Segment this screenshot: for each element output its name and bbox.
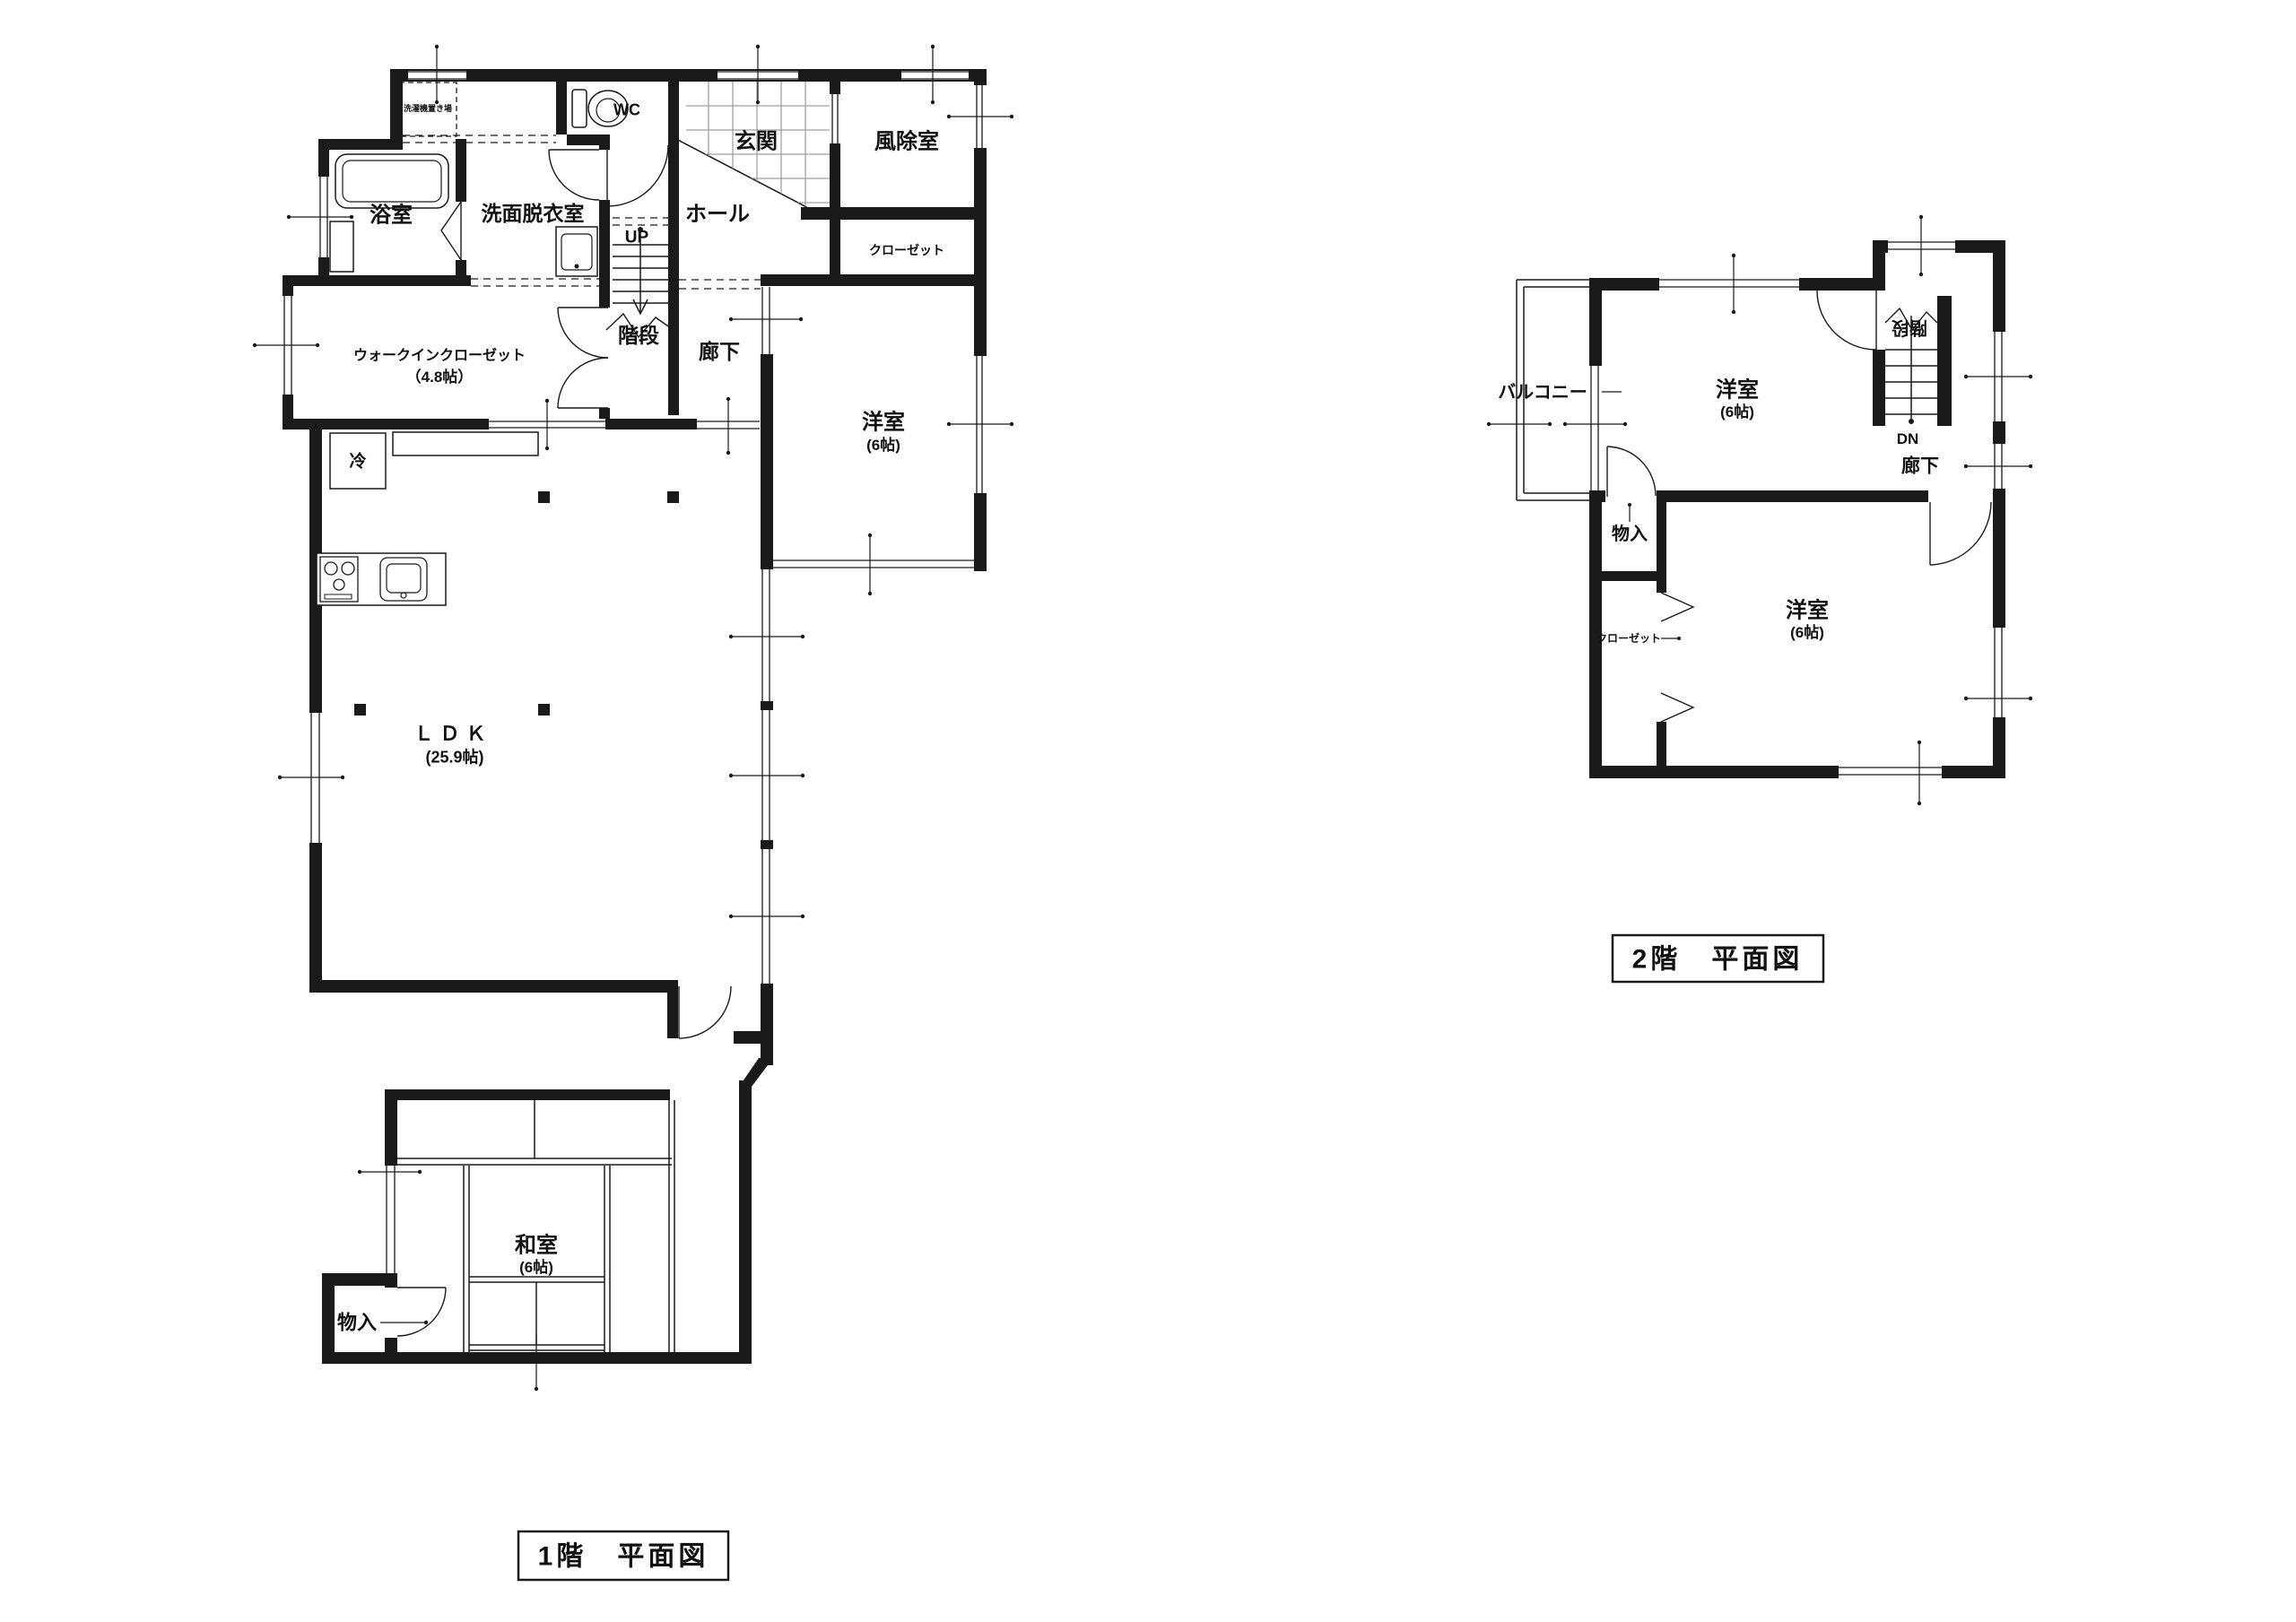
label-wic-size: （4.8帖）	[406, 368, 474, 386]
label-bedroom2-name: 洋室	[1786, 597, 1829, 622]
wall	[830, 220, 840, 274]
pillar	[538, 704, 550, 716]
wall	[318, 257, 329, 275]
f2-windows	[1563, 215, 2032, 805]
label-fridge: 冷	[349, 451, 366, 472]
label-balcony: バルコニー	[1498, 382, 1587, 403]
pillar	[538, 491, 550, 503]
f1-walls	[283, 69, 987, 1364]
label-stairs-1f: 階段	[618, 324, 659, 347]
window-veranda-south	[773, 533, 974, 595]
wall	[1799, 278, 1885, 291]
wall	[739, 1080, 752, 1364]
label-wic-name: ウォークインクローゼット	[353, 347, 526, 364]
door-bath-fold	[441, 202, 461, 260]
label-western-size-1f: (6帖)	[866, 436, 900, 454]
wall	[761, 354, 773, 569]
wall	[734, 1031, 761, 1044]
wall	[667, 993, 678, 1038]
wall	[556, 82, 567, 134]
wall	[1602, 571, 1666, 581]
wall	[1589, 278, 1659, 291]
label-bath: 浴室	[370, 202, 413, 227]
label-japanese-name: 和室	[515, 1232, 558, 1257]
wall	[390, 82, 403, 139]
door-ldk-exit	[679, 986, 731, 1038]
wall	[1993, 240, 2005, 332]
wall	[761, 274, 987, 286]
wall	[1993, 489, 2005, 628]
wall	[668, 82, 679, 415]
window	[717, 45, 798, 104]
window	[1659, 254, 1799, 314]
floor2-plan: バルコニー 洋室 (6帖) 階段 DN 廊下 物入 クローゼット 洋室 (6帖)…	[1487, 215, 2032, 982]
wall	[1589, 766, 1839, 778]
label-storage-1f: 物入	[337, 1312, 377, 1334]
wall	[1942, 766, 2005, 778]
kitchen-back-counter	[393, 432, 538, 455]
wall	[385, 1338, 397, 1352]
window	[358, 1166, 422, 1273]
wall	[1873, 253, 1885, 291]
window	[278, 713, 344, 843]
wall	[974, 493, 987, 571]
window	[947, 356, 1013, 493]
wall	[318, 150, 329, 177]
door-wic-double	[558, 308, 608, 408]
door-storage-2f	[1607, 447, 1656, 497]
label-laundry: 洗濯機置き場	[404, 103, 452, 113]
wall	[974, 148, 987, 356]
floorplan-canvas: 洗濯機置き場 浴室 洗面脱衣室 WC 玄関 風除室 ホール UP クローゼット …	[0, 0, 2296, 1622]
kitchen-island	[317, 553, 446, 605]
label-wc: WC	[613, 100, 640, 118]
floorplan-page: 洗濯機置き場 浴室 洗面脱衣室 WC 玄関 風除室 ホール UP クローゼット …	[0, 0, 2296, 1622]
window	[947, 85, 1013, 148]
wall	[309, 980, 678, 993]
f1-fixtures	[317, 82, 628, 605]
window	[1964, 628, 2032, 717]
wall	[1589, 291, 1602, 366]
pillar	[354, 704, 366, 716]
floor1-title: 1階 平面図	[538, 1542, 709, 1572]
sliding-door	[697, 397, 760, 455]
wall	[456, 260, 466, 275]
sliding-door	[729, 287, 803, 354]
floor2-title: 2階 平面図	[1632, 945, 1804, 975]
window-wall-east	[729, 569, 804, 984]
wall	[761, 984, 773, 1065]
wall	[385, 1100, 397, 1166]
label-closet-1f: クローゼット	[869, 243, 944, 257]
label-japanese-size: (6帖)	[519, 1258, 553, 1276]
label-western-name-1f: 洋室	[862, 409, 905, 434]
wall	[974, 69, 987, 85]
label-bedroom1-size: (6帖)	[1720, 403, 1754, 421]
wall	[283, 419, 489, 429]
wall	[1657, 722, 1666, 778]
floor1-plan: 洗濯機置き場 浴室 洗面脱衣室 WC 玄関 風除室 ホール UP クローゼット …	[253, 45, 1013, 1580]
label-hall: ホール	[685, 202, 750, 226]
wall	[283, 286, 293, 296]
wall	[283, 275, 471, 286]
pillar	[667, 491, 679, 503]
wall	[1873, 240, 1888, 253]
wall	[283, 395, 293, 419]
label-bedroom2-size: (6帖)	[1790, 623, 1824, 641]
window	[1964, 332, 2032, 421]
floor1-title-box: 1階 平面図	[518, 1531, 728, 1580]
wall	[599, 134, 610, 150]
door-bedroom2	[1930, 502, 1991, 565]
window	[1964, 444, 2032, 489]
wall	[1589, 490, 1605, 502]
label-storage-2f: 物入	[1612, 523, 1648, 544]
label-closet-2f: クローゼット	[1596, 631, 1661, 645]
wall	[605, 419, 697, 429]
wall	[322, 1286, 335, 1364]
wall	[1657, 581, 1666, 593]
window	[408, 45, 466, 104]
f2-walls	[1589, 240, 2005, 778]
wall	[599, 285, 610, 308]
label-washroom: 洗面脱衣室	[482, 202, 585, 225]
window	[253, 296, 319, 395]
window	[901, 45, 969, 104]
wall	[309, 843, 322, 993]
wall	[830, 143, 840, 207]
door-wc	[607, 145, 668, 206]
window	[1888, 215, 1955, 276]
wall	[599, 200, 610, 285]
label-up: UP	[625, 229, 649, 247]
label-windbreak: 風除室	[874, 128, 939, 153]
vanity-icon	[556, 227, 597, 276]
wall	[599, 408, 610, 419]
wall	[1657, 502, 1666, 581]
closet-bifold-doors	[1661, 593, 1693, 722]
label-stairs-2f: 階段	[1892, 317, 1927, 339]
wall	[322, 1273, 397, 1286]
wall	[1873, 350, 1885, 426]
wall	[318, 139, 403, 150]
label-corridor-1f: 廊下	[699, 340, 740, 363]
floor2-title-box: 2階 平面図	[1613, 935, 1823, 982]
door-washroom	[549, 150, 599, 200]
wall	[801, 207, 987, 220]
wall	[385, 1089, 670, 1100]
label-ldk-name: ＬＤＫ	[413, 723, 491, 745]
wall	[1993, 421, 2005, 444]
sliding-door	[832, 94, 838, 143]
label-entrance: 玄関	[735, 128, 778, 153]
label-corridor-2f: 廊下	[1901, 455, 1939, 476]
label-ldk-size: (25.9帖)	[425, 747, 483, 766]
wall	[456, 139, 466, 202]
door-bedroom1	[1817, 291, 1876, 350]
wall	[830, 82, 840, 94]
label-dn: DN	[1897, 430, 1919, 447]
label-bedroom1-name: 洋室	[1716, 377, 1759, 402]
window	[1839, 741, 1942, 805]
wall	[1657, 490, 1928, 502]
door-storage	[397, 1288, 446, 1336]
wall	[1937, 296, 1952, 426]
wall	[390, 69, 987, 82]
